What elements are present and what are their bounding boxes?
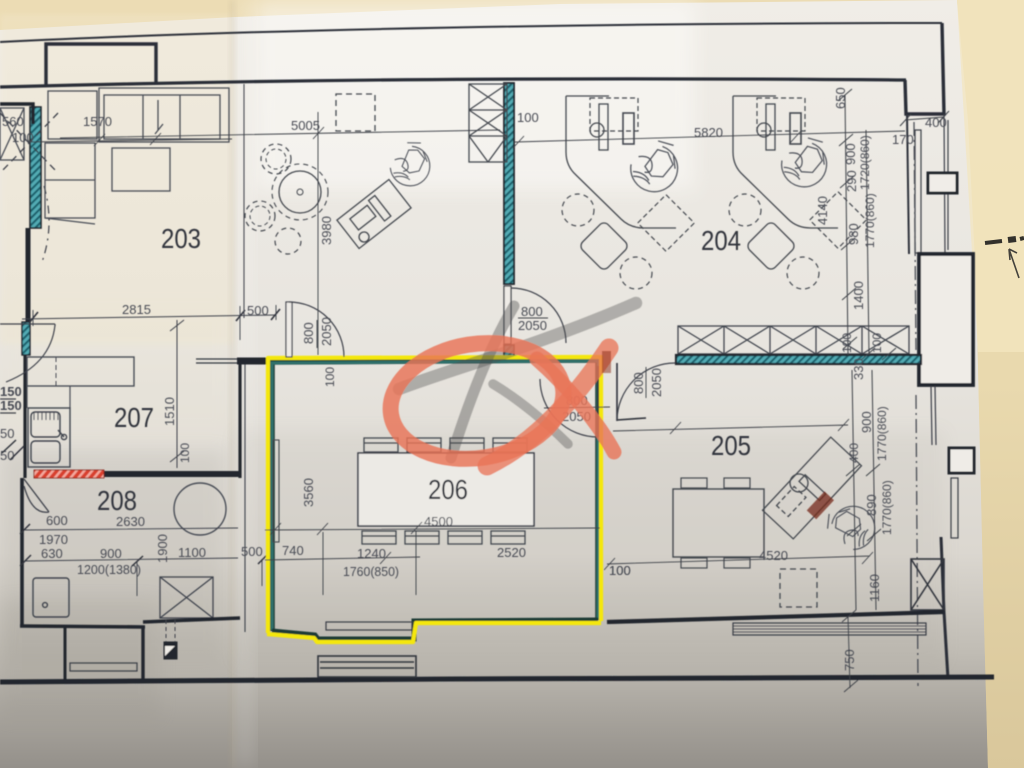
- svg-text:100: 100: [870, 333, 884, 353]
- svg-text:100: 100: [12, 130, 34, 145]
- svg-text:500: 500: [241, 544, 263, 559]
- svg-text:100: 100: [323, 367, 337, 387]
- svg-text:100: 100: [840, 333, 854, 353]
- svg-text:2050: 2050: [319, 317, 334, 346]
- svg-text:740: 740: [282, 543, 304, 558]
- svg-text:100: 100: [517, 110, 539, 125]
- svg-text:208: 208: [97, 485, 137, 516]
- svg-text:206: 206: [428, 474, 468, 505]
- svg-text:1970: 1970: [39, 532, 68, 547]
- svg-text:900: 900: [100, 546, 122, 561]
- svg-text:1760(850): 1760(850): [343, 564, 399, 579]
- svg-text:1200(1380): 1200(1380): [77, 562, 141, 577]
- svg-text:630: 630: [41, 546, 63, 561]
- svg-text:4500: 4500: [424, 514, 453, 529]
- svg-text:3980: 3980: [319, 216, 334, 245]
- svg-text:800: 800: [301, 322, 316, 344]
- svg-text:330: 330: [851, 358, 866, 380]
- svg-text:150: 150: [0, 398, 22, 413]
- svg-text:1570: 1570: [83, 114, 112, 129]
- svg-text:650: 650: [833, 87, 848, 109]
- svg-text:203: 203: [161, 223, 201, 254]
- svg-text:5005: 5005: [291, 118, 320, 133]
- svg-text:900: 900: [843, 143, 858, 165]
- svg-text:290: 290: [844, 170, 859, 192]
- svg-text:500: 500: [247, 303, 269, 318]
- svg-text:1510: 1510: [162, 397, 177, 426]
- svg-text:2050: 2050: [518, 318, 547, 333]
- svg-text:5820: 5820: [694, 125, 723, 140]
- svg-text:890: 890: [864, 494, 879, 516]
- svg-text:600: 600: [46, 513, 68, 528]
- svg-text:50: 50: [0, 448, 14, 463]
- svg-text:2630: 2630: [116, 514, 145, 529]
- svg-text:50: 50: [0, 426, 14, 441]
- svg-text:2815: 2815: [122, 302, 151, 317]
- svg-text:2520: 2520: [497, 545, 526, 560]
- svg-text:2050: 2050: [649, 368, 664, 397]
- svg-text:800: 800: [631, 372, 646, 394]
- svg-text:1770(860): 1770(860): [863, 193, 877, 248]
- svg-text:1240: 1240: [357, 546, 386, 561]
- svg-text:100: 100: [178, 443, 192, 463]
- svg-text:4140: 4140: [815, 196, 830, 225]
- svg-text:900: 900: [859, 411, 874, 433]
- svg-text:1100: 1100: [178, 545, 206, 560]
- svg-text:1770(860): 1770(860): [875, 406, 889, 461]
- svg-text:207: 207: [114, 402, 154, 433]
- svg-text:560: 560: [2, 114, 24, 129]
- svg-text:980: 980: [846, 223, 861, 245]
- svg-text:400: 400: [847, 443, 861, 463]
- svg-text:204: 204: [701, 225, 741, 256]
- svg-text:4520: 4520: [759, 548, 788, 563]
- svg-text:205: 205: [711, 430, 751, 461]
- svg-text:1720(860): 1720(860): [858, 135, 872, 190]
- svg-text:800: 800: [521, 304, 543, 319]
- svg-text:150: 150: [0, 384, 22, 399]
- svg-text:1160: 1160: [867, 574, 882, 602]
- svg-text:170: 170: [892, 132, 914, 147]
- svg-text:100: 100: [609, 563, 631, 578]
- svg-text:1400: 1400: [851, 281, 866, 310]
- svg-text:1770(860): 1770(860): [880, 480, 894, 535]
- svg-text:3560: 3560: [301, 478, 316, 507]
